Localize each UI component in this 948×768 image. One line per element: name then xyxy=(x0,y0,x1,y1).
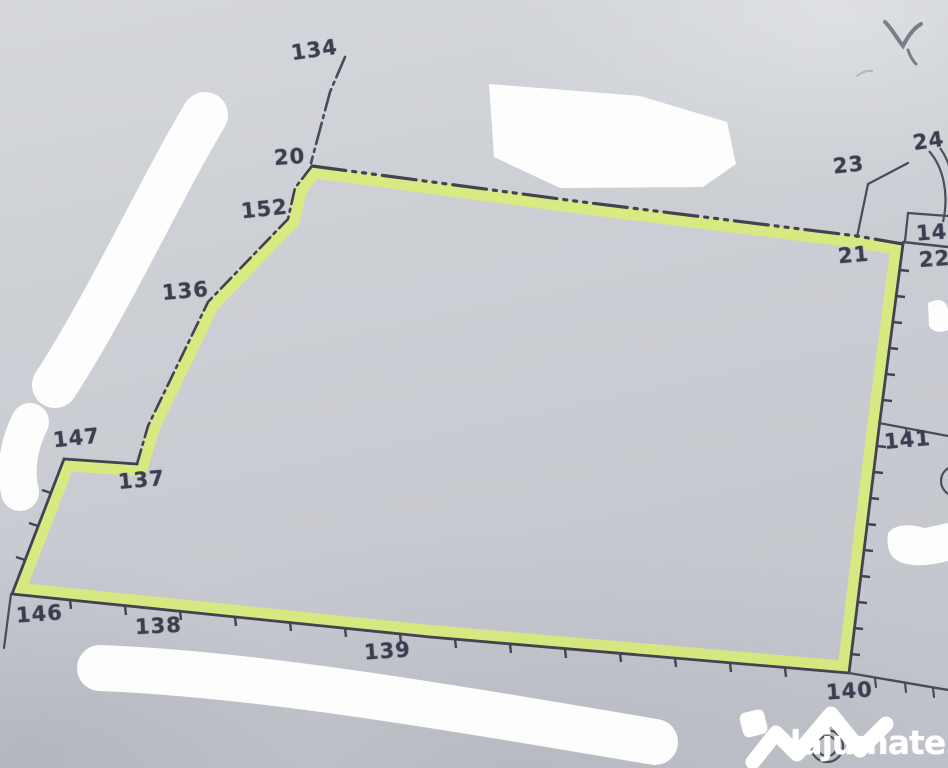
whiteout-right-1 xyxy=(928,300,948,332)
point-label-138: 138 xyxy=(134,615,182,638)
whiteout-left-small xyxy=(18,422,30,492)
point-label-20: 20 xyxy=(273,146,306,169)
point-label-146: 146 xyxy=(15,602,63,626)
point-label-141: 141 xyxy=(883,428,931,453)
point-label-23: 23 xyxy=(832,153,865,177)
site-watermark: lajumate.ro xyxy=(738,700,948,768)
whiteout-right-2 xyxy=(888,523,948,565)
point-label-21: 21 xyxy=(837,244,870,268)
handwritten-v-mark xyxy=(857,22,921,76)
whiteout-top xyxy=(489,84,736,188)
point-label-152: 152 xyxy=(240,197,289,223)
point-label-139: 139 xyxy=(363,639,411,663)
cadastral-map-photo: 134 20 152 136 147 137 146 138 139 140 1… xyxy=(0,0,948,768)
point-label-136: 136 xyxy=(161,279,209,304)
whiteout-bottom-strip xyxy=(100,668,655,742)
point-label-142: 142 xyxy=(915,220,948,244)
point-label-137: 137 xyxy=(117,468,165,493)
line-to-134 xyxy=(311,57,345,163)
point-label-24: 24 xyxy=(912,129,946,154)
whiteout-left-strip xyxy=(55,115,205,385)
point-label-22: 22 xyxy=(918,248,948,271)
point-label-147: 147 xyxy=(52,426,101,452)
boundary-right xyxy=(849,244,903,673)
survey-drawing xyxy=(0,0,948,768)
watermark-brand: lajumate xyxy=(790,723,945,762)
